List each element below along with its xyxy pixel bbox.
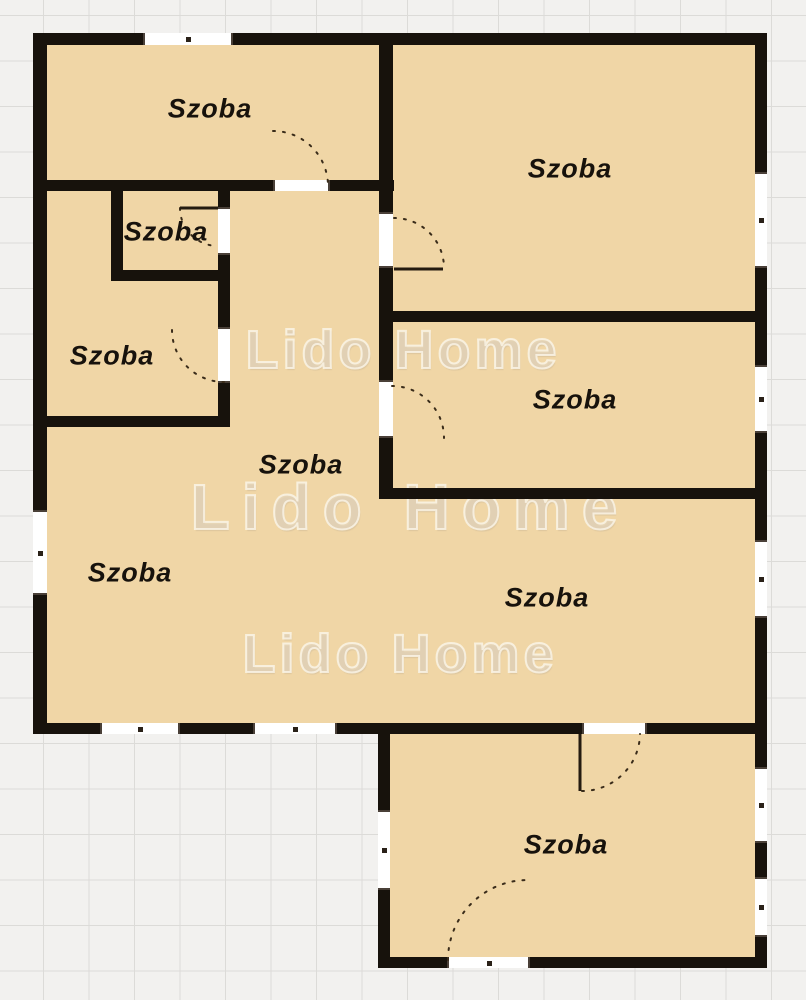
room-label-bottom-center: Szoba: [505, 583, 590, 614]
room-label-hall: Szoba: [259, 450, 344, 481]
room-label-left-bottom: Szoba: [88, 558, 173, 589]
door-swing-arc: [448, 880, 528, 960]
room-label-top-right: Szoba: [528, 154, 613, 185]
room-label-small: Szoba: [124, 217, 209, 248]
door-swing-arc: [273, 131, 328, 185]
room-label-left-middle: Szoba: [70, 341, 155, 372]
room-label-middle-right: Szoba: [533, 385, 618, 416]
door-swing-overlay: [0, 0, 806, 1000]
door-swing-arc: [582, 734, 640, 791]
door-swing-arc: [392, 386, 444, 438]
floor-plan-canvas: Lido Home Lido Home Lido Home: [0, 0, 806, 1000]
door-swing-arc: [394, 218, 444, 268]
room-label-top-left: Szoba: [168, 94, 253, 125]
door-swing-arc: [172, 330, 224, 382]
room-label-bottom: Szoba: [524, 830, 609, 861]
